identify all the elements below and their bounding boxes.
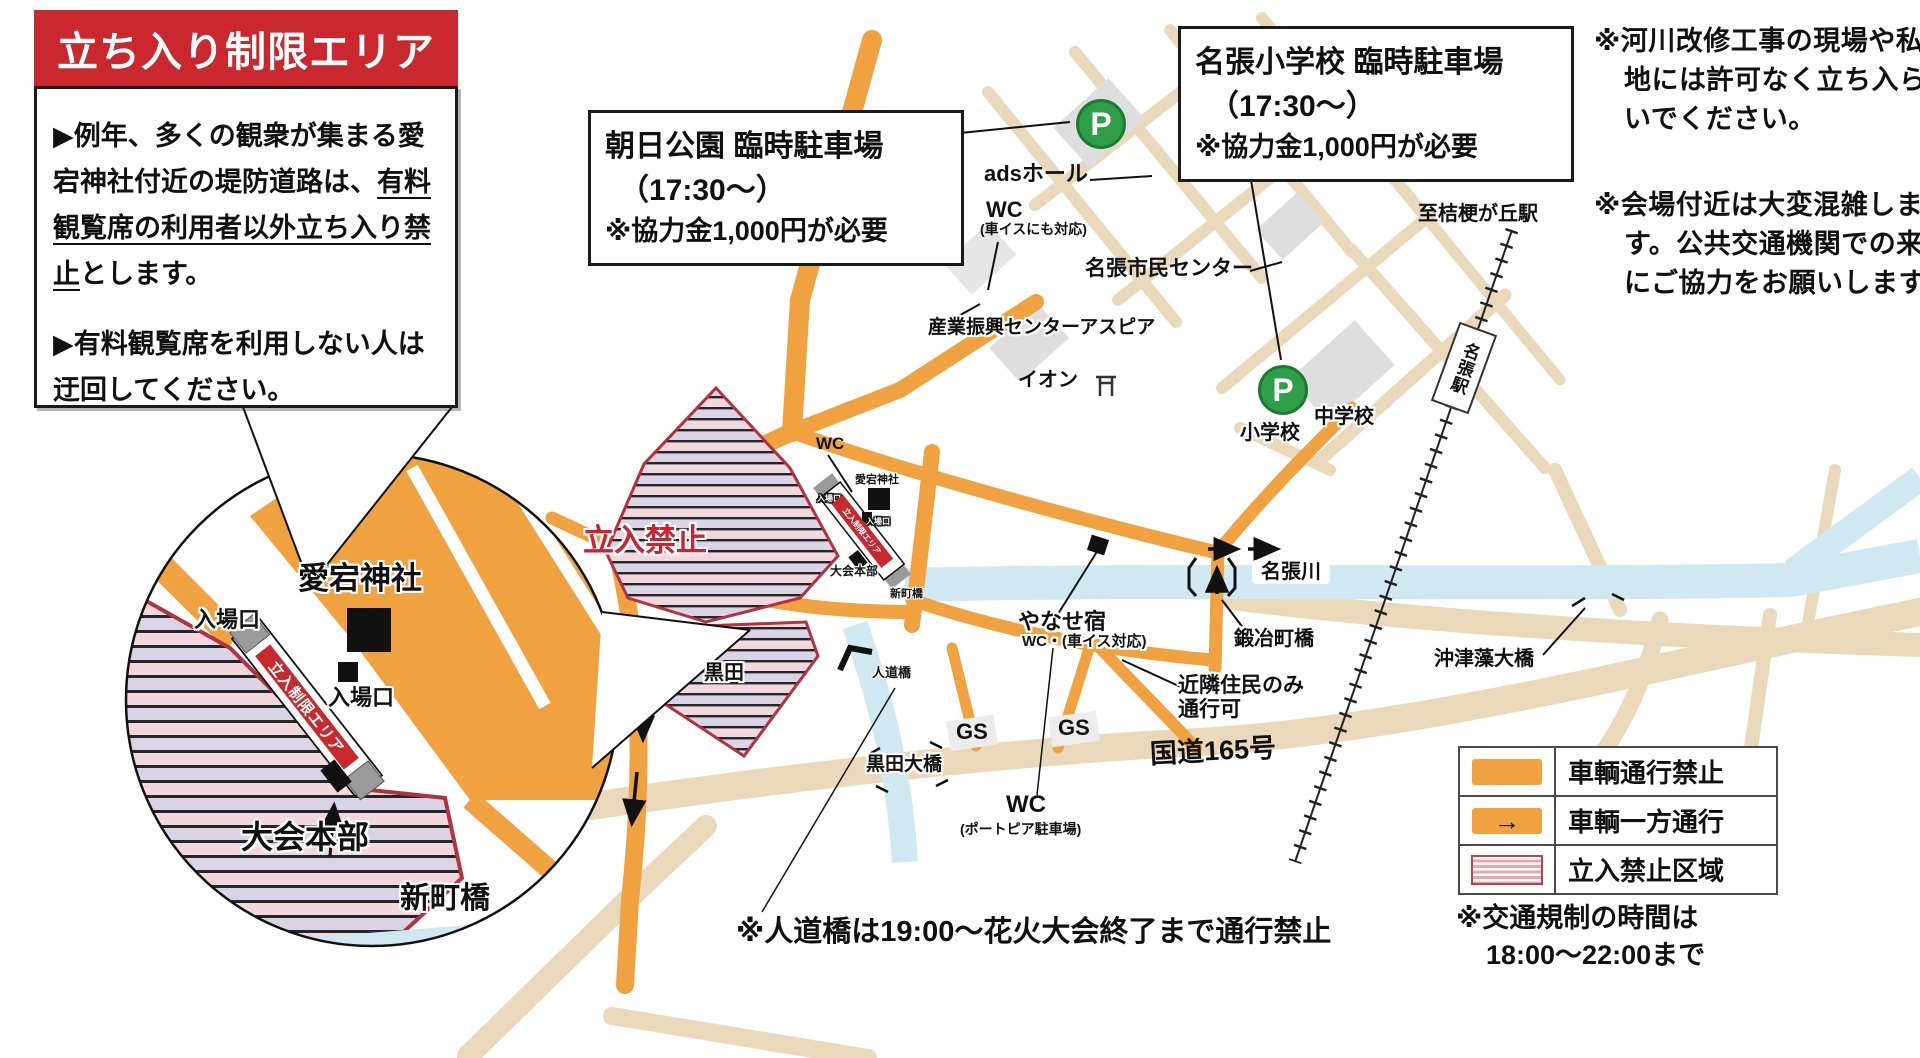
legend-row-oneway: → 車輌一方通行 [1460,797,1776,846]
parking-fee: ※協力金1,000円が必要 [1195,128,1557,167]
label-chugakko: 中学校 [1314,406,1374,428]
oneway-arrow-icon: → [1494,808,1520,834]
inset-label-taikai-honbu: 大会本部 [241,820,369,856]
legend-row-closed: 車輌通行禁止 [1460,748,1776,797]
info-bullet-1: ▶例年、多くの観衆が集まる愛宕神社付近の堤防道路は、有料観覧席の利用者以外立ち入… [53,113,439,297]
label-kuroda: 黒田 [704,662,744,684]
legend-label: 車輌一方通行 [1556,802,1724,839]
label-yanase-juku: やなせ宿 [1018,610,1106,635]
restricted-area-banner: 立ち入り制限エリア [34,10,458,86]
restricted-area-info-box: ▶例年、多くの観衆が集まる愛宕神社付近の堤防道路は、有料観覧席の利用者以外立ち入… [34,86,458,408]
label-taikai-honbu-main: 大会本部 [830,565,878,578]
label-wc-atago: WC [816,434,844,453]
label-tachiiri-kinshi: 立入禁止 [583,524,707,559]
closed-road-swatch [1472,759,1542,785]
legend-label: 車輌通行禁止 [1556,753,1724,790]
note-river-construction: ※河川改修工事の現場や私有地には許可なく立ち入らないでください。 [1594,22,1920,139]
note-pedestrian-bridge: ※人道橋は19:00～花火大会終了まで通行禁止 [736,916,1331,948]
label-to-kikyogaoka: 至桔梗が丘駅 [1418,203,1538,225]
nabari-school-parking-box: 名張小学校 臨時駐車場 （17:30～） ※協力金1,000円が必要 [1178,26,1574,182]
inset-label-nyujoguchi: 入場口 [194,608,260,633]
legend-label: 立入禁止区域 [1556,851,1724,888]
shrine-icon [1096,377,1116,396]
label-nyujoguchi-main: 入場口 [866,518,890,527]
parking-icon: P [1258,365,1308,415]
label-wc-portopia-sub: (ポートピア駐車場) [960,822,1081,838]
asahi-park-parking-box: 朝日公園 臨時駐車場 （17:30～） ※協力金1,000円が必要 [588,110,964,266]
label-ads-hall: adsホール [984,162,1088,187]
oneway-road-swatch: → [1472,808,1542,834]
label-jindo-bashi: 人道橋 [872,666,911,681]
label-wc-main: WC [986,198,1023,223]
label-kuroda-ohashi: 黒田大橋 [866,754,942,775]
inset-label-nyujoguchi: 入場口 [328,686,394,711]
inset-label-shinmachi-bashi: 新町橋 [400,882,490,916]
noentry-zone-swatch [1471,855,1543,885]
label-kinrin2: 通行可 [1178,698,1241,722]
parking-time: （17:30～） [605,169,947,213]
label-shimin-center: 名張市民センター [1085,257,1253,281]
info-bullet-2: ▶有料観覧席を利用しない人は迂回してください。 [53,321,439,413]
map-legend: 車輌通行禁止 → 車輌一方通行 立入禁止区域 [1458,746,1778,895]
parking-time: （17:30～） [1195,85,1557,129]
label-aeon: イオン [1018,369,1078,391]
label-yanase-juku-sub: WC・(車イス対応) [1022,634,1147,651]
traffic-restriction-map: 立ち入り制限エリア ▶例年、多くの観衆が集まる愛宕神社付近の堤防道路は、有料観覧… [0,0,1920,1058]
inset-label-atago-jinja: 愛宕神社 [298,562,422,597]
label-wc-main-sub: (車イスにも対応) [980,222,1087,238]
parking-name: 名張小学校 臨時駐車場 [1195,41,1557,85]
label-kajicho-bashi: 鍛冶町橋 [1234,628,1314,650]
legend-row-noentry: 立入禁止区域 [1460,846,1776,893]
parking-icon: P [1076,99,1126,149]
parking-fee: ※協力金1,000円が必要 [605,212,947,251]
label-shinmachi-bashi-main: 新町橋 [890,588,923,600]
parking-name: 朝日公園 臨時駐車場 [605,125,947,169]
label-nabari-gawa: 名張川 [1252,560,1330,584]
legend-note: ※交通規制の時間は 18:00～22:00まで [1456,900,1786,974]
label-shogakko: 小学校 [1240,422,1300,444]
label-gs: GS [1058,716,1090,741]
label-okitsumo-ohashi: 沖津藻大橋 [1434,648,1534,670]
label-wc-portopia: WC [1006,792,1046,819]
label-atago-jinja-main: 愛宕神社 [855,474,899,486]
label-gs: GS [956,720,988,745]
label-kinrin: 近隣住民のみ [1178,674,1304,698]
note-public-transport: ※会場付近は大変混雑します。公共交通機関での来場にご協力をお願いします。 [1594,186,1920,303]
label-sangyo-center: 産業振興センターアスピア [928,317,1155,338]
